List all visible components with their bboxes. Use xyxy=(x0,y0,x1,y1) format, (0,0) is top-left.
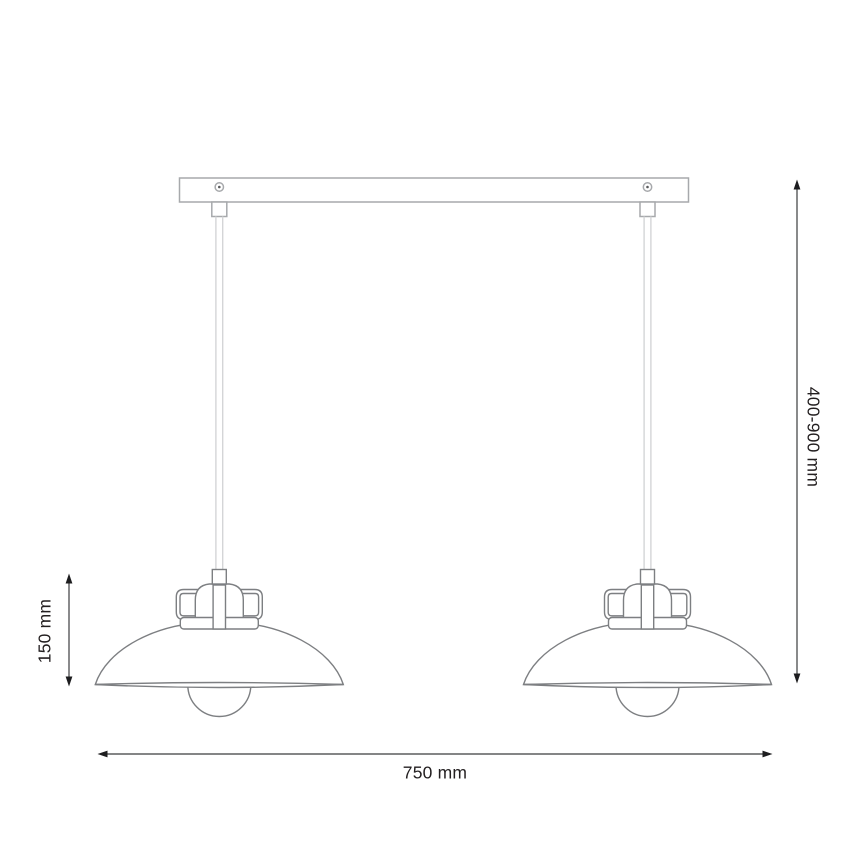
dimension-suspension-height: 400-900 mm xyxy=(794,180,824,684)
technical-drawing-page: 400-900 mm 150 mm 750 mm xyxy=(0,0,868,868)
arrowhead-down-icon xyxy=(794,674,801,684)
dimension-overall-width: 750 mm xyxy=(98,751,773,783)
pendant-lamp-right xyxy=(524,183,772,717)
arrowhead-left-icon xyxy=(98,751,108,758)
arrowhead-right-icon xyxy=(763,751,773,758)
ceiling-bar xyxy=(180,178,689,202)
dimension-label-overall-width: 750 mm xyxy=(403,763,467,783)
arrowhead-up-icon xyxy=(66,574,73,584)
dimension-label-suspension-height: 400-900 mm xyxy=(803,387,823,487)
technical-drawing-canvas: 400-900 mm 150 mm 750 mm xyxy=(0,0,868,868)
dimension-label-shade-height: 150 mm xyxy=(35,599,55,663)
arrowhead-down-icon xyxy=(66,677,73,687)
dimension-shade-height: 150 mm xyxy=(35,574,73,687)
pendant-lamp-left xyxy=(95,183,343,717)
arrowhead-up-icon xyxy=(794,180,801,190)
